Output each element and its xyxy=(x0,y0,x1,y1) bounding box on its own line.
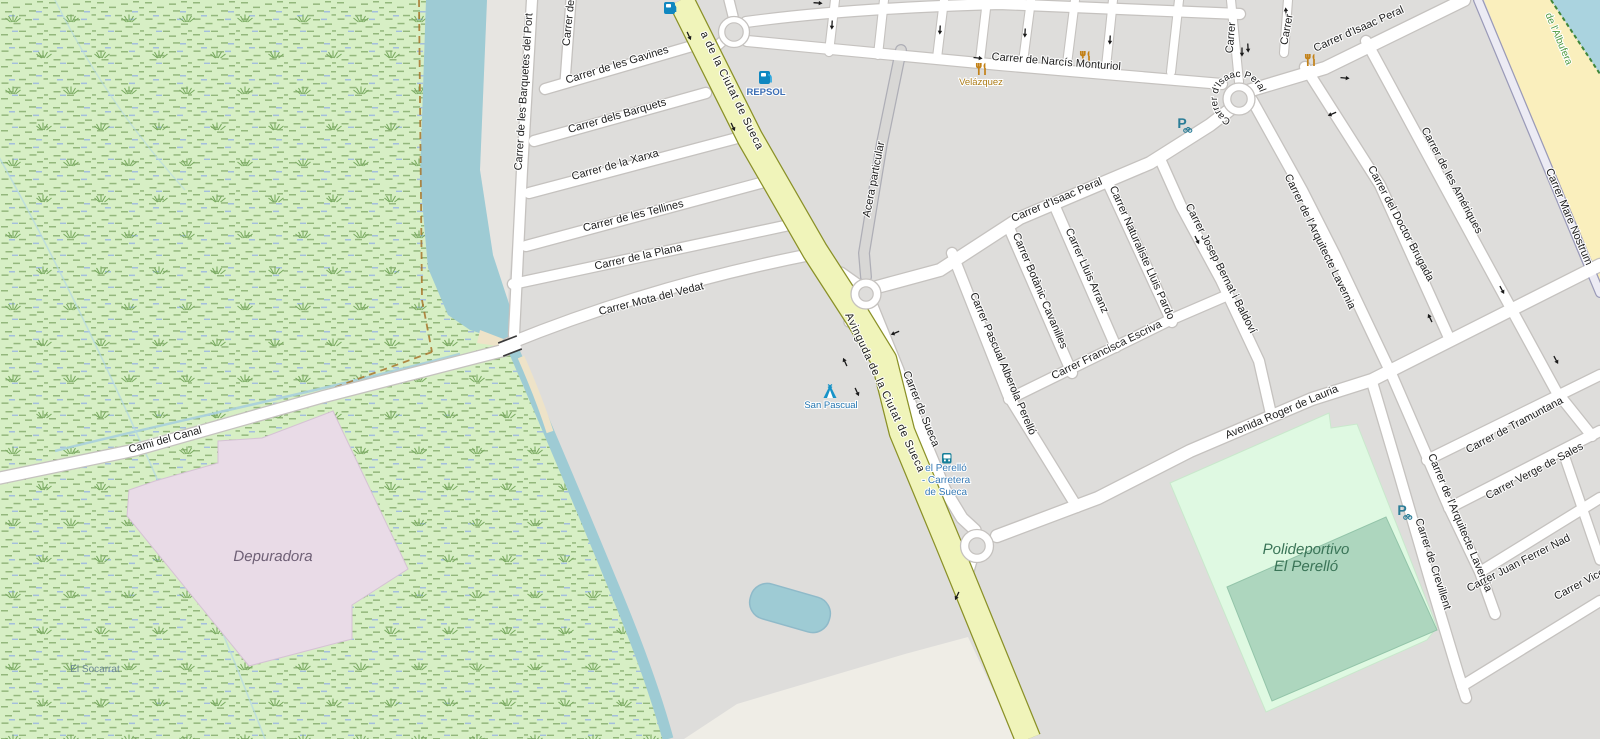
svg-text:de Sueca: de Sueca xyxy=(925,487,968,498)
svg-text:Velázquez: Velázquez xyxy=(959,77,1003,88)
svg-text:El Perelló: El Perelló xyxy=(1274,558,1338,575)
svg-text:Polideportivo: Polideportivo xyxy=(1263,541,1350,558)
svg-text:- Carretera: - Carretera xyxy=(922,475,971,486)
svg-text:el Perelló: el Perelló xyxy=(925,463,967,474)
svg-text:San Pascual: San Pascual xyxy=(804,400,857,411)
svg-text:Depuradora: Depuradora xyxy=(233,548,312,565)
svg-text:REPSOL: REPSOL xyxy=(746,87,785,98)
svg-text:El Socarrat: El Socarrat xyxy=(70,664,120,675)
